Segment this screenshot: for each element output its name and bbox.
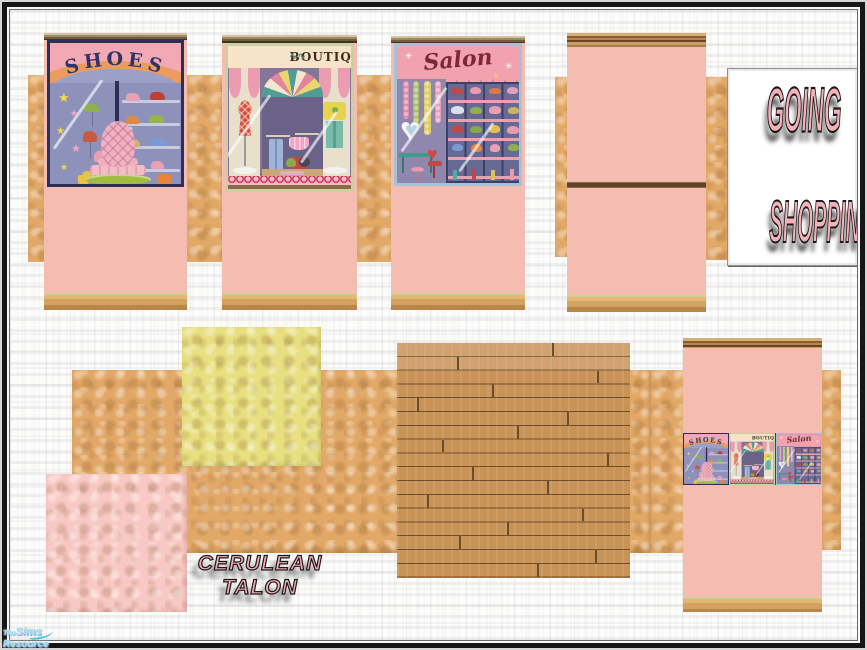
plank-joint — [607, 453, 609, 466]
tan-stucco-band — [822, 370, 841, 550]
mannequin-base — [233, 167, 257, 174]
shelf-item — [810, 470, 814, 473]
curtain — [770, 442, 774, 452]
stool-leg — [417, 171, 419, 181]
wall-swatch-salon: Salon ✳ ✳ ✳ ♥ ♥ ♥ — [391, 36, 525, 310]
wood-cornice — [44, 33, 187, 40]
shelf-item — [451, 88, 463, 94]
hat-item — [803, 456, 807, 459]
bottle-item — [491, 170, 495, 180]
sparkle-icon: ✳ — [493, 73, 499, 80]
wood-sill-strip — [228, 185, 351, 189]
mannequin-pole — [244, 136, 246, 166]
hat-item — [796, 456, 801, 459]
flourish-icon: ∿∿ — [752, 434, 758, 442]
curtain — [338, 68, 350, 98]
wood-cornice — [683, 338, 822, 348]
wood-floor-swatch — [397, 343, 630, 578]
shoe-item — [151, 161, 164, 169]
boutique-mural: ∿∿ BOUTIQUE ∿∿ — [729, 433, 775, 485]
mannequin-pole — [736, 465, 737, 475]
star-icon: ★ — [687, 477, 690, 480]
watermark-resource: Resource — [3, 639, 49, 650]
shelf-item — [817, 470, 821, 473]
shoe-item — [695, 465, 700, 469]
shoes-mural: SHOES ★ ★ ★ ★ ★ — [683, 433, 729, 485]
curtain — [229, 68, 241, 98]
left-display-window — [229, 68, 260, 178]
creator-line-2: TALON — [160, 576, 360, 600]
creator-line-1: CERULEAN — [160, 552, 360, 576]
curtain — [731, 442, 735, 452]
sparkle-icon: ✳ — [405, 52, 413, 61]
pineapple-display — [701, 462, 712, 478]
tan-stucco-band — [651, 370, 683, 553]
title-line-2: SHOPPING! — [769, 187, 815, 256]
shelf-item — [796, 463, 800, 466]
pink-mat — [280, 171, 304, 175]
tsr-watermark: TheSims Resource — [3, 626, 49, 649]
mannequin-base — [764, 476, 773, 478]
pink-wall-upper — [567, 47, 706, 182]
wood-sill-strip — [730, 483, 774, 484]
mini-salon-mural: Salon ✳ ✳ ✳ ♥ ♥ ♥ — [776, 433, 822, 485]
plank-joint — [547, 481, 549, 494]
flourish-icon: ∿∿ — [290, 46, 307, 68]
shelf-item — [507, 87, 518, 94]
shelf-item — [470, 126, 482, 133]
center-display — [262, 97, 323, 178]
pink-sill — [228, 176, 351, 185]
title-card: GOING SHOPPING! — [727, 68, 858, 266]
plank-joint — [417, 398, 419, 411]
wall-swatch-shop-border: SHOES ★ ★ ★ ★ ★ — [683, 338, 822, 612]
plank-joint — [552, 343, 554, 356]
table-leg — [402, 157, 404, 173]
hat-item — [817, 456, 821, 459]
shelf-item — [816, 449, 820, 452]
shelf-item — [810, 449, 814, 451]
table-leg — [778, 474, 779, 480]
salon-mural: Salon ✳ ✳ ✳ ♥ ♥ ♥ — [394, 43, 522, 186]
shoe-item — [718, 476, 722, 479]
shoe-item — [83, 131, 97, 142]
shoes-title: SHOES — [684, 436, 728, 444]
shelf-item — [803, 449, 807, 452]
shoe-item — [150, 92, 165, 100]
star-icon: ★ — [58, 91, 70, 104]
bottle-item — [810, 479, 811, 483]
wall-swatch-shoes: SHOES ★ ★ ★ ★ ★ — [44, 33, 187, 310]
gift-box — [158, 174, 171, 184]
shoes-title: SHOES — [50, 48, 181, 70]
jeans — [745, 467, 750, 477]
sparkle-icon: ✳ — [505, 62, 513, 71]
shoe-item — [84, 104, 100, 112]
right-display-window — [319, 68, 350, 178]
shoes-mural: SHOES ★ ★ ★ ★ ★ — [47, 40, 184, 187]
shelf-item — [452, 125, 463, 133]
pink-skirt — [289, 137, 309, 150]
shoe-item — [126, 116, 139, 124]
shoe-item — [126, 93, 140, 101]
plank-joint — [492, 384, 494, 397]
curtain — [248, 68, 260, 98]
shoe-item — [695, 456, 700, 459]
chair-leg — [790, 478, 791, 482]
shoe-stand — [90, 141, 91, 159]
shelf-item — [803, 463, 807, 466]
texture-set-preview: SHOES ★ ★ ★ ★ ★ — [0, 0, 867, 650]
chair-leg — [433, 166, 435, 178]
salon-mural: Salon ✳ ✳ ✳ ♥ ♥ ♥ — [776, 433, 822, 485]
plank-joint — [517, 426, 519, 439]
yellow-stucco-swatch — [182, 327, 321, 466]
teal-pants — [765, 460, 771, 469]
chair-seat — [428, 161, 442, 166]
shelf-item — [507, 126, 519, 134]
sparkle-icon: ✳ — [780, 436, 783, 439]
shelf-item — [796, 470, 800, 473]
sparkle-icon: ✳ — [811, 444, 813, 447]
shelf-item — [816, 463, 820, 466]
creator-signature: CERULEAN TALON — [160, 552, 360, 600]
plank-joint — [427, 495, 429, 508]
clothes-rod — [295, 133, 319, 135]
plank-joint — [567, 412, 569, 425]
wood-cornice — [222, 35, 357, 43]
bottle-item — [817, 479, 818, 483]
plank-joint — [537, 564, 539, 577]
hat-item — [489, 106, 501, 114]
shoe-item — [717, 460, 722, 463]
star-icon: ★ — [60, 163, 68, 172]
plank-joint — [442, 440, 444, 453]
shoe-item — [718, 468, 723, 471]
shoe-item — [151, 138, 165, 146]
wood-baseboard — [567, 295, 706, 312]
stool-leg — [784, 480, 785, 484]
hat-item — [451, 106, 464, 114]
jeans — [269, 139, 283, 169]
shelf-item — [796, 449, 800, 451]
shelf-item — [508, 144, 519, 151]
mini-boutique-mural: ∿∿ BOUTIQUE ∿∿ — [729, 433, 775, 485]
striped-awning — [742, 442, 764, 451]
hat-item — [508, 107, 519, 114]
plank-joint — [595, 550, 597, 563]
mannequin-base — [323, 167, 347, 174]
gift-box — [720, 480, 724, 484]
boutique-mural: ∿∿ BOUTIQUE ∿∿ — [225, 43, 354, 192]
wall-swatch-boutique: ∿∿ BOUTIQUE ∿∿ — [222, 35, 357, 310]
wood-baseboard — [683, 597, 822, 612]
display-base — [696, 480, 718, 484]
shelf-item — [490, 144, 500, 152]
shelf-item — [452, 144, 463, 151]
curtain — [737, 442, 741, 452]
striped-awning — [262, 70, 323, 97]
shoe-item — [149, 115, 164, 123]
pineapple-display — [101, 121, 135, 167]
plank-joint — [457, 357, 459, 370]
mannequin-base — [732, 476, 741, 478]
plank-joint — [459, 536, 461, 549]
shoe-item — [718, 451, 723, 454]
plank-joint — [472, 467, 474, 480]
title-line-1: GOING — [767, 73, 819, 146]
wood-cornice — [391, 36, 525, 43]
plank-joint — [597, 371, 599, 384]
wall-swatch-plain-pink — [567, 33, 706, 312]
tan-stucco-band — [555, 77, 567, 257]
star-icon: ★ — [71, 144, 81, 155]
boutique-header: ∿∿ BOUTIQUE ∿∿ — [730, 434, 774, 442]
bottle-item — [453, 170, 457, 180]
bottle-item — [804, 479, 805, 483]
mini-shoes-mural: SHOES ★ ★ ★ ★ ★ — [683, 433, 729, 485]
watermark-the: The — [3, 630, 15, 637]
boutique-header: ∿∿ BOUTIQUE ∿∿ — [228, 46, 351, 68]
hat-item — [470, 107, 482, 114]
shoe-stand — [92, 111, 93, 127]
tan-stucco-band — [706, 77, 727, 260]
green-handbag — [286, 158, 296, 167]
star-icon: ★ — [691, 470, 694, 474]
shopfront-border-band: SHOES ★ ★ ★ ★ ★ — [683, 433, 822, 485]
tan-stucco-band — [28, 75, 44, 262]
display-base — [85, 174, 151, 185]
plank-joint — [507, 522, 509, 535]
tan-stucco-band — [187, 75, 222, 262]
bottle-item — [472, 169, 476, 180]
hat-item — [810, 456, 814, 459]
plank-joint — [582, 509, 584, 522]
shelf-item — [470, 87, 481, 94]
wood-cornice — [567, 33, 706, 47]
green-handbag — [751, 473, 755, 476]
tan-stucco-band — [357, 75, 391, 262]
wood-baseboard — [222, 293, 357, 310]
shelf-item — [489, 88, 501, 94]
shoe-item — [710, 452, 715, 455]
star-icon: ★ — [687, 451, 691, 456]
pink-wall-lower — [567, 188, 706, 295]
wood-baseboard — [44, 293, 187, 310]
bottle-item — [797, 479, 798, 483]
wood-baseboard — [391, 293, 525, 310]
bottle-item — [510, 169, 514, 180]
clothes-rod — [266, 135, 290, 137]
sparkle-icon: ✳ — [815, 440, 818, 443]
